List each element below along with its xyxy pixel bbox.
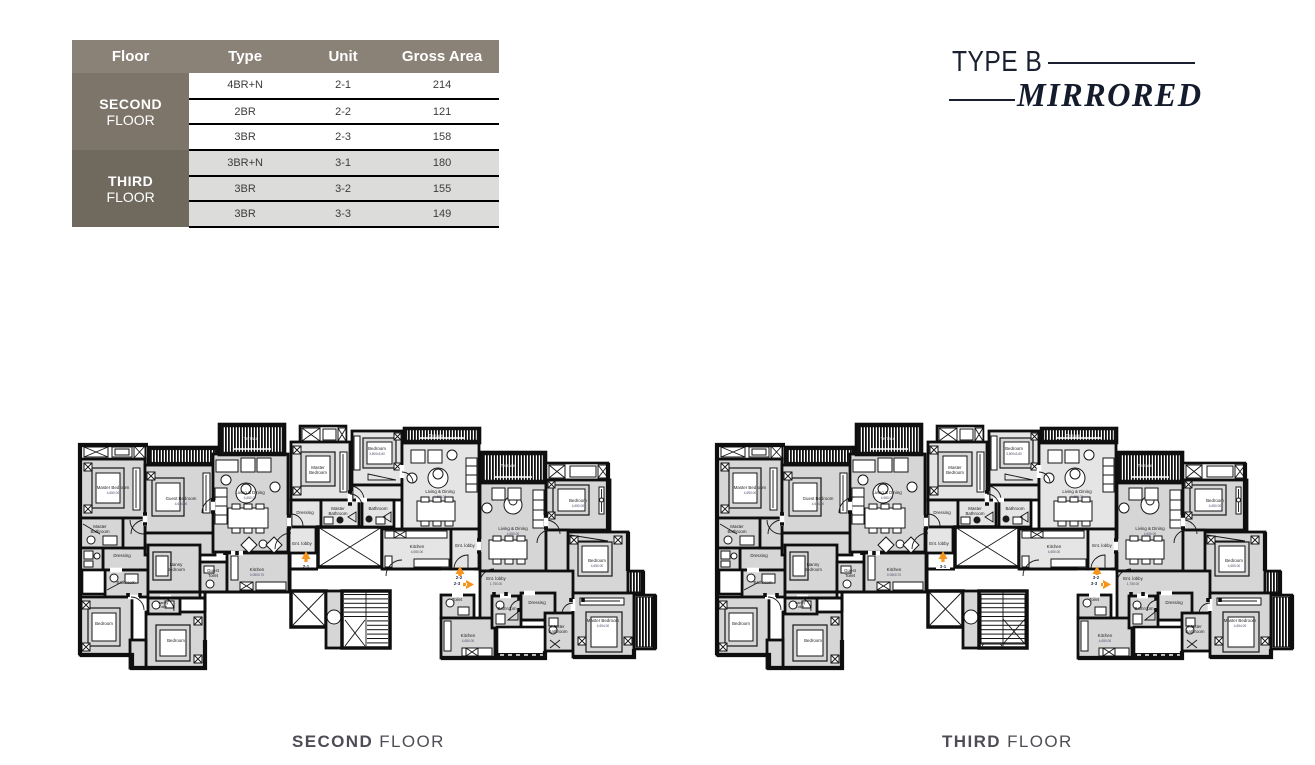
svg-text:3-2: 3-2	[1093, 575, 1100, 580]
svg-text:3-3: 3-3	[1091, 581, 1098, 586]
svg-text:3-1: 3-1	[940, 564, 947, 569]
